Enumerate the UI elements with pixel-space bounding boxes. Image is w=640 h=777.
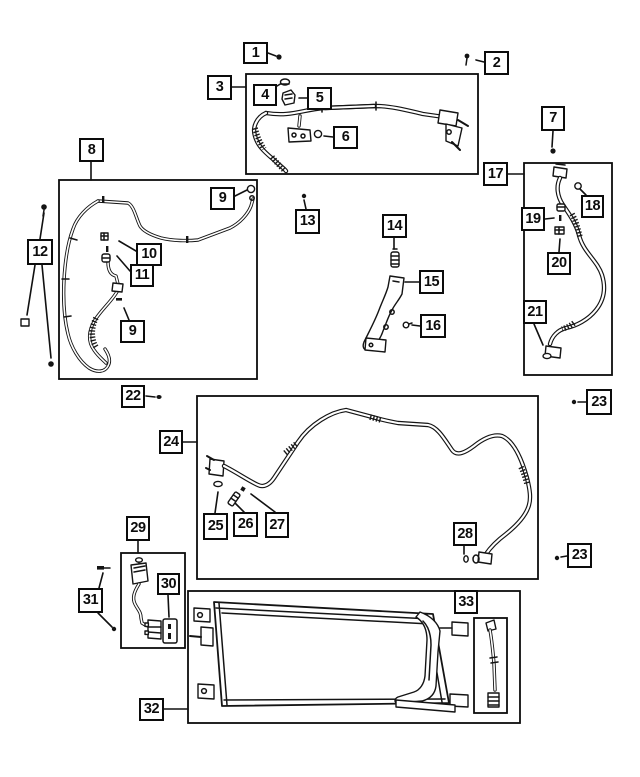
callout-c31[interactable]: 31	[78, 588, 103, 613]
callout-c24[interactable]: 24	[159, 430, 183, 454]
callout-c25[interactable]: 25	[203, 513, 228, 540]
callout-c1[interactable]: 1	[243, 42, 268, 64]
callout-c29[interactable]: 29	[126, 516, 150, 541]
callout-c16[interactable]: 16	[420, 314, 446, 338]
callout-c20[interactable]: 20	[547, 252, 571, 275]
callout-c14[interactable]: 14	[382, 214, 407, 238]
callout-c27[interactable]: 27	[265, 512, 289, 538]
callout-c26[interactable]: 26	[233, 512, 258, 537]
callout-c30[interactable]: 30	[157, 573, 180, 595]
callout-c9b[interactable]: 9	[120, 320, 145, 343]
callout-c12[interactable]: 12	[27, 239, 53, 265]
callout-c8[interactable]: 8	[79, 138, 104, 162]
callout-c3[interactable]: 3	[207, 75, 232, 100]
callout-c10[interactable]: 10	[136, 243, 162, 266]
callout-c11[interactable]: 11	[130, 264, 154, 287]
callout-c6[interactable]: 6	[333, 126, 358, 149]
callout-c32[interactable]: 32	[139, 698, 164, 721]
callout-c15[interactable]: 15	[419, 270, 444, 294]
callout-c23b[interactable]: 23	[567, 543, 592, 568]
callout-c7[interactable]: 7	[541, 106, 565, 131]
callout-c13[interactable]: 13	[295, 209, 320, 234]
callout-c5[interactable]: 5	[307, 87, 332, 110]
callout-c23a[interactable]: 23	[586, 389, 612, 415]
callout-c2[interactable]: 2	[484, 51, 509, 75]
callout-c17[interactable]: 17	[483, 162, 508, 186]
callout-c18[interactable]: 18	[581, 195, 604, 218]
callout-c9a[interactable]: 9	[210, 187, 235, 210]
parts-diagram-page: 1234567891011912131415161718192021222324…	[0, 0, 640, 777]
callout-c4[interactable]: 4	[253, 84, 277, 106]
callout-c28[interactable]: 28	[453, 522, 477, 546]
callout-c21[interactable]: 21	[523, 300, 547, 324]
callout-layer: 1234567891011912131415161718192021222324…	[0, 0, 640, 777]
callout-c19[interactable]: 19	[521, 207, 545, 231]
callout-c22[interactable]: 22	[121, 385, 145, 408]
callout-c33[interactable]: 33	[454, 590, 478, 614]
